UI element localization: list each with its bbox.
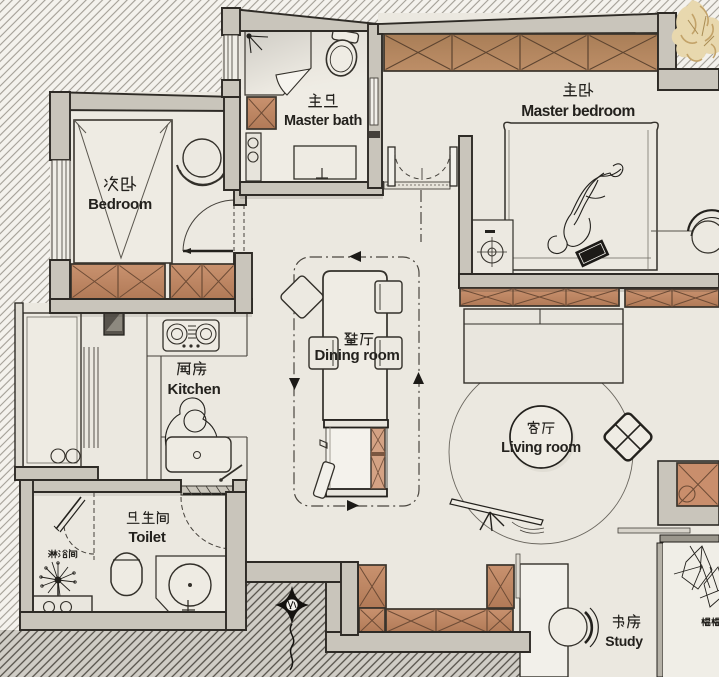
svg-text:Master bath: Master bath: [284, 113, 362, 129]
svg-text:Bedroom: Bedroom: [88, 196, 152, 213]
svg-text:Study: Study: [605, 633, 643, 649]
svg-text:Toilet: Toilet: [128, 529, 165, 546]
svg-text:Dining room: Dining room: [314, 347, 399, 364]
svg-text:Living room: Living room: [501, 440, 581, 456]
svg-text:Master bedroom: Master bedroom: [521, 103, 635, 120]
svg-text:Kitchen: Kitchen: [168, 381, 221, 398]
